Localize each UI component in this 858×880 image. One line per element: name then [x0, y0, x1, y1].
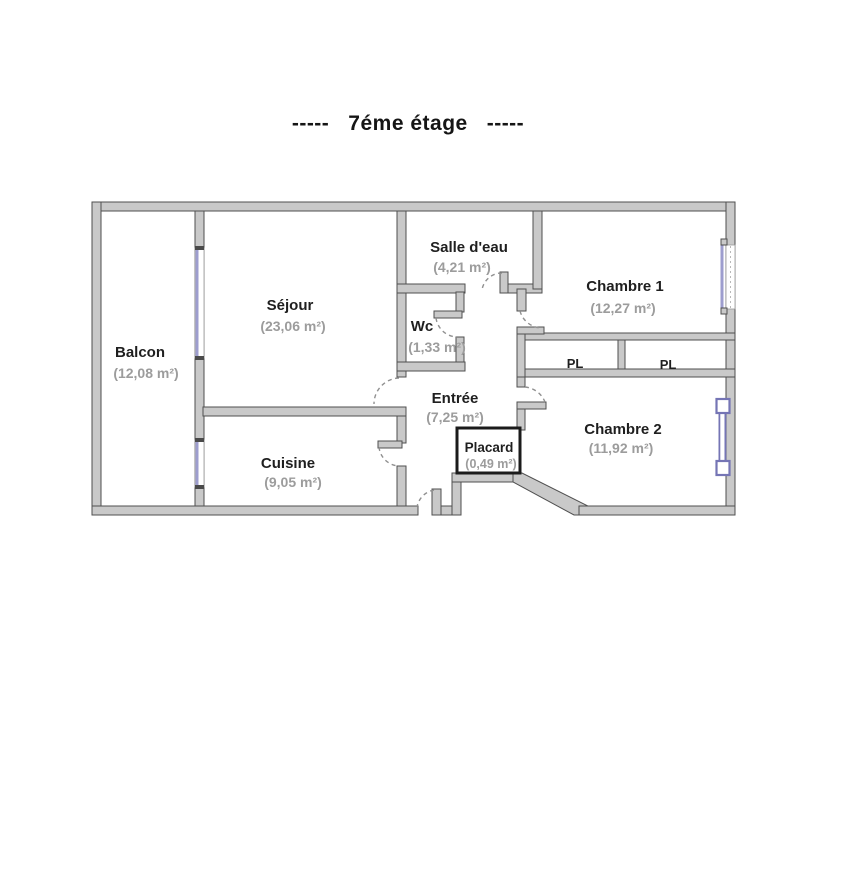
sejour-right-wall [397, 211, 406, 377]
hall-chambre1-wall [517, 289, 526, 311]
room-label-salle-deau: Salle d'eau [430, 239, 508, 256]
salle-deau-bottom-wall [397, 284, 465, 293]
chambre2-window-handle-bottom [717, 461, 730, 475]
chambre2-window-handle-top [717, 399, 730, 413]
room-label-sejour: Séjour [267, 297, 314, 314]
floor-title: ----- 7éme étage ----- [292, 112, 524, 135]
entry-door-leaf [432, 489, 441, 515]
pl-divider [618, 340, 625, 369]
outer-wall-bottom-left [92, 506, 418, 515]
salle-deau-right-wall [533, 211, 542, 289]
wc-door-arc [436, 318, 457, 337]
pl-bottom-wall [517, 369, 735, 377]
room-area-entree: (7,25 m²) [426, 409, 484, 425]
room-area-chambre1: (12,27 m²) [590, 300, 655, 316]
room-label-entree: Entrée [432, 390, 479, 407]
room-label-chambre2: Chambre 2 [584, 421, 662, 438]
cuisine-right-wall-upper [397, 416, 406, 443]
walls [92, 202, 735, 515]
balcon-window-lower-glass [196, 442, 199, 485]
balcon-window-upper-glass [196, 250, 199, 356]
wc-door-leaf [434, 311, 462, 318]
chambre2-door-leaf [517, 402, 546, 409]
chambre1-door-arc [520, 311, 542, 328]
room-area-placard: (0,49 m²) [465, 457, 516, 471]
chambre2-window-line [725, 406, 727, 468]
window-cap [721, 308, 727, 314]
floorplan-svg: ----- 7éme étage ----- [0, 0, 858, 880]
window-cap [195, 246, 204, 250]
sejour-door-arc [374, 378, 399, 404]
window-cap [195, 356, 204, 360]
outer-wall-left [92, 202, 101, 515]
wc-right-wall-upper [456, 292, 464, 312]
chambre2-door-arc [525, 387, 545, 402]
closet-label-pl-right: PL [660, 357, 677, 372]
room-label-wc: Wc [411, 318, 434, 335]
chambre1-door-leaf [517, 327, 544, 334]
cuisine-right-wall-lower [397, 466, 406, 506]
diagonal-wall [513, 473, 588, 515]
sejour-cuisine-wall [203, 407, 406, 416]
entry-door-arc [417, 490, 434, 507]
chambre2-wall-upper [517, 377, 525, 387]
cuisine-door-leaf [378, 441, 402, 448]
room-area-cuisine: (9,05 m²) [264, 474, 322, 490]
room-area-sejour: (23,06 m²) [260, 318, 325, 334]
room-label-placard: Placard [465, 440, 514, 455]
cuisine-door-arc [379, 447, 399, 466]
room-label-chambre1: Chambre 1 [586, 278, 664, 295]
outer-wall-top [92, 202, 735, 211]
room-area-salle-deau: (4,21 m²) [433, 259, 491, 275]
window-cap [721, 239, 727, 245]
pl-top-wall [517, 333, 735, 340]
room-area-chambre2: (11,92 m²) [589, 440, 654, 456]
outer-wall-bottom-right [579, 506, 735, 515]
chambre2-window-line [719, 406, 721, 468]
chambre1-window-glass [721, 245, 724, 309]
salle-deau-door-leaf [500, 272, 508, 293]
window-cap [195, 438, 204, 442]
room-area-balcon: (12,08 m²) [113, 365, 178, 381]
window-cap [195, 485, 204, 489]
wc-bottom-wall [397, 362, 465, 371]
room-area-wc: (1,33 m²) [408, 339, 466, 355]
closet-label-pl-left: PL [567, 356, 584, 371]
room-label-cuisine: Cuisine [261, 455, 315, 472]
room-label-balcon: Balcon [115, 344, 165, 361]
floorplan-page: ----- 7éme étage ----- [0, 0, 858, 880]
salle-deau-door-arc [482, 273, 502, 290]
pl-left-cap [517, 333, 525, 377]
